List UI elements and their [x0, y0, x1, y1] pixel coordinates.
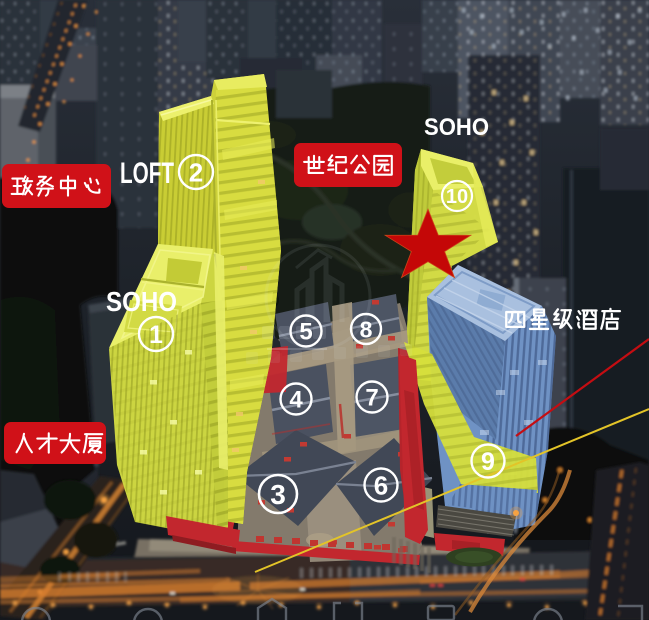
- svg-text:1: 1: [149, 321, 163, 349]
- svg-text:9: 9: [481, 448, 495, 476]
- svg-text:LOFT: LOFT: [120, 157, 174, 190]
- svg-text:10: 10: [446, 186, 468, 208]
- svg-text:5: 5: [299, 319, 312, 346]
- svg-text:6: 6: [374, 470, 388, 500]
- svg-text:3: 3: [270, 479, 286, 510]
- svg-text:2: 2: [189, 157, 203, 187]
- svg-text:SOHO: SOHO: [424, 114, 489, 141]
- svg-text:SOHO: SOHO: [106, 286, 177, 317]
- svg-text:4: 4: [289, 387, 303, 414]
- svg-text:7: 7: [365, 385, 378, 412]
- svg-text:8: 8: [360, 316, 373, 342]
